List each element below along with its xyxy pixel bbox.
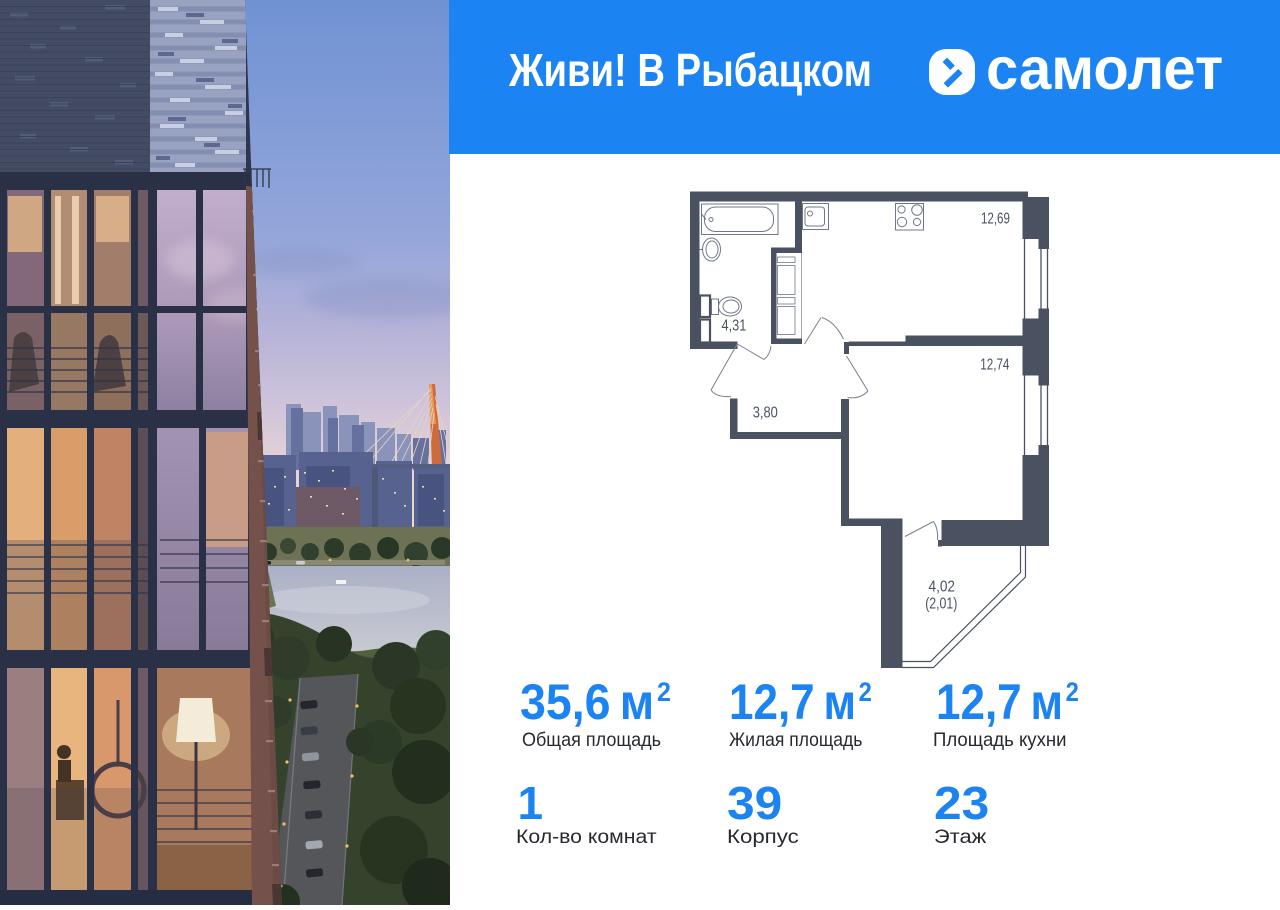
svg-text:12,74: 12,74 [980,356,1009,373]
svg-text:4,31: 4,31 [722,318,747,335]
svg-text:4,02: 4,02 [929,579,956,596]
svg-text:(2,01): (2,01) [925,596,957,613]
svg-text:12,69: 12,69 [981,211,1010,228]
svg-text:3,80: 3,80 [753,405,778,422]
